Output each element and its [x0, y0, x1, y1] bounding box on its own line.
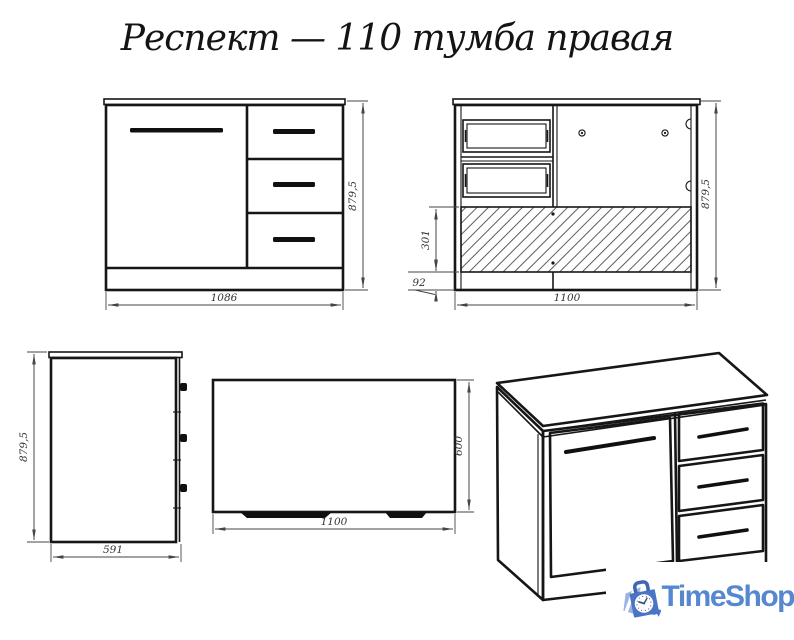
front-view: 879,5 1086: [75, 85, 385, 320]
side-view: 879,5 591: [10, 340, 205, 575]
logo-text: TimeShop: [662, 580, 794, 614]
front-drawer2-handle: [273, 182, 315, 187]
top-width-label: 1100: [321, 516, 348, 528]
persp-drawer3-handle: [699, 530, 747, 537]
rear-width-dimension: 1100: [455, 292, 697, 310]
rear-hinge-cup-2: [686, 181, 691, 191]
side-body: [51, 358, 176, 542]
top-cabinet-outline: [213, 380, 455, 518]
front-width-label: 1086: [211, 292, 238, 304]
rear-height-dimension: 879,5: [699, 101, 721, 290]
page-title: Респект — 110 тумба правая: [0, 18, 794, 59]
persp-divider: [675, 412, 677, 563]
front-drawer3-handle: [273, 237, 315, 242]
persp-door: [550, 418, 673, 577]
technical-drawing-page: Респект — 110 тумба правая 879,5: [0, 0, 794, 640]
rear-width-label: 1100: [554, 292, 581, 304]
rear-stretcher-dot-2: [551, 261, 554, 264]
side-handle-3: [180, 484, 187, 492]
persp-door-handle: [566, 438, 654, 452]
side-depth-label: 591: [103, 544, 123, 556]
rear-tabletop: [453, 99, 700, 105]
side-height-label: 879,5: [18, 432, 30, 462]
side-depth-dimension: 591: [51, 544, 181, 562]
front-height-label: 879,5: [347, 181, 359, 211]
persp-drawer2-handle: [699, 480, 747, 487]
front-door-handle: [130, 128, 223, 133]
top-tabletop-outline: [213, 380, 455, 512]
rear-view: 301 92 1100 879,5: [395, 85, 740, 320]
rear-drawer-box-1-inner: [467, 124, 546, 148]
top-depth-label: 600: [453, 436, 465, 456]
rear-screw-dot-1: [581, 132, 583, 134]
front-cabinet-outline: [104, 99, 345, 290]
persp-tabletop: [497, 353, 767, 426]
front-drawer1-handle: [273, 129, 315, 134]
top-door-handle: [240, 512, 332, 518]
persp-drawer1-handle: [699, 429, 747, 437]
front-tabletop: [104, 99, 345, 105]
rear-plinth-label: 92: [412, 277, 426, 289]
side-cabinet-outline: [49, 352, 187, 542]
rear-screw-dot-2: [664, 132, 666, 134]
top-drawer-handle: [385, 512, 427, 518]
top-view: 600 1100: [200, 365, 495, 545]
side-height-dimension: 879,5: [18, 352, 49, 542]
timeshop-bag-clock-icon: [622, 569, 661, 631]
side-tabletop: [49, 352, 182, 358]
rear-stretcher-dot-1: [551, 212, 554, 215]
rear-height-label: 879,5: [700, 179, 712, 209]
side-handle-2: [180, 434, 187, 442]
side-handle-1: [180, 383, 187, 391]
rear-hinge-cup-1: [686, 119, 691, 129]
rear-hatched-stretcher: [461, 207, 691, 272]
front-width-dimension: 1086: [106, 292, 343, 310]
front-height-dimension: 879,5: [345, 101, 368, 290]
rear-drawer-box-1: [463, 120, 550, 152]
rear-stretcher-dimension: 301: [408, 207, 459, 272]
rear-cabinet-outline: [453, 99, 700, 290]
rear-stretcher-label: 301: [420, 230, 432, 250]
rear-drawer-box-2: [463, 164, 550, 197]
timeshop-logo[interactable]: TimeShop: [606, 562, 794, 638]
rear-plinth-dimension: 92: [408, 262, 455, 300]
rear-drawer-box-2-inner: [467, 168, 546, 193]
